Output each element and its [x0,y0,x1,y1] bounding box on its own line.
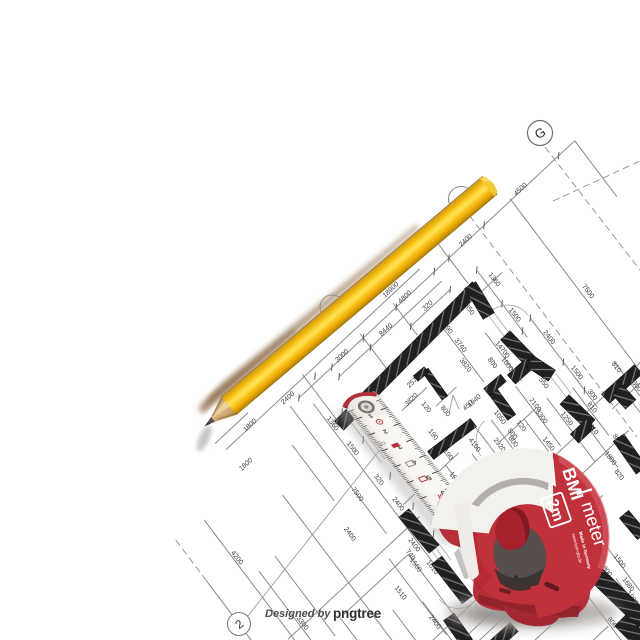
svg-text:Designed by: Designed by [265,608,331,620]
svg-text:pngtree: pngtree [333,606,382,621]
